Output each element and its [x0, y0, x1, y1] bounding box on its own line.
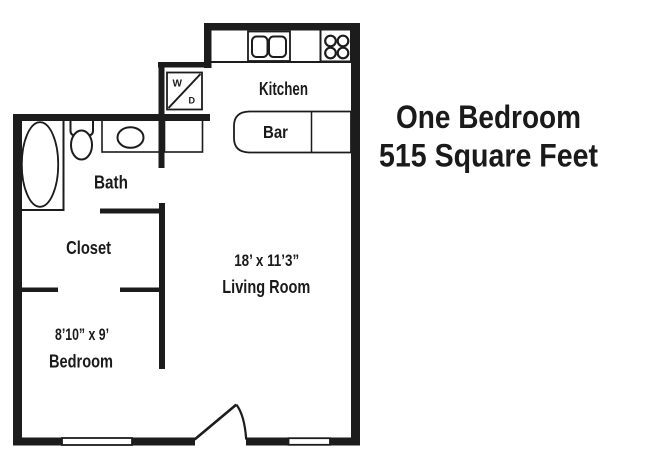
svg-text:D: D [189, 96, 196, 106]
svg-text:Bar: Bar [263, 122, 288, 142]
svg-text:Living Room: Living Room [222, 276, 310, 297]
svg-text:Bath: Bath [94, 172, 128, 193]
svg-text:18’ x 11’3”: 18’ x 11’3” [234, 252, 299, 270]
svg-text:Closet: Closet [66, 237, 111, 258]
svg-text:Bedroom: Bedroom [49, 351, 113, 372]
svg-text:8’10” x 9’: 8’10” x 9’ [55, 326, 109, 344]
svg-text:Kitchen: Kitchen [259, 78, 308, 99]
svg-text:One Bedroom: One Bedroom [396, 99, 581, 135]
svg-text:W: W [173, 79, 183, 90]
svg-text:515 Square Feet: 515 Square Feet [379, 138, 598, 174]
